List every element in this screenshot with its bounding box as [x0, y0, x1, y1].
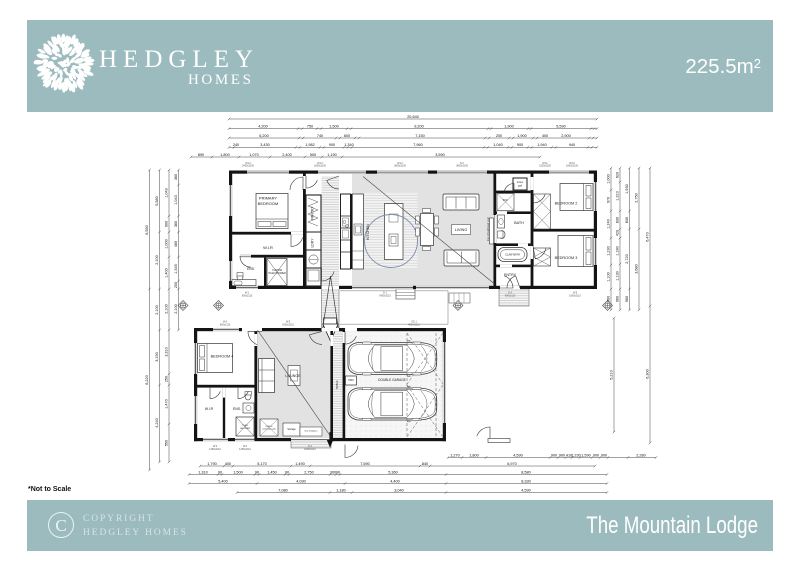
svg-text:960: 960 — [616, 296, 620, 302]
svg-text:5400x2110: 5400x2110 — [379, 294, 391, 297]
svg-text:6,200: 6,200 — [259, 134, 269, 138]
svg-text:600x2110: 600x2110 — [242, 294, 253, 297]
svg-text:1,940: 1,940 — [537, 143, 547, 147]
svg-text:ENS.: ENS. — [233, 407, 241, 411]
svg-text:1,345: 1,345 — [174, 264, 178, 274]
svg-text:400: 400 — [542, 134, 548, 138]
svg-text:1,130: 1,130 — [616, 271, 620, 281]
svg-text:1200x2100: 1200x2100 — [539, 165, 552, 168]
svg-text:2,720: 2,720 — [625, 254, 629, 264]
svg-text:1,800: 1,800 — [469, 453, 479, 457]
svg-text:LIVING: LIVING — [455, 228, 467, 232]
svg-text:1800x2110: 1800x2110 — [282, 323, 294, 326]
svg-text:3,310: 3,310 — [165, 347, 169, 357]
svg-text:1,270: 1,270 — [450, 453, 460, 457]
svg-text:CLAW BATH: CLAW BATH — [505, 253, 520, 257]
svg-text:2,900: 2,900 — [561, 134, 571, 138]
svg-text:1450x2110: 1450x2110 — [239, 448, 251, 451]
svg-text:4,030: 4,030 — [296, 479, 306, 483]
svg-text:200: 200 — [174, 282, 178, 288]
svg-text:2,750: 2,750 — [635, 193, 639, 203]
svg-text:BATH: BATH — [514, 221, 524, 225]
svg-text:1,180: 1,180 — [616, 246, 620, 256]
svg-text:1,040: 1,040 — [493, 143, 503, 147]
svg-text:5,400: 5,400 — [218, 479, 228, 483]
svg-text:600: 600 — [344, 134, 350, 138]
svg-text:1,100: 1,100 — [607, 272, 611, 282]
svg-text:1,310: 1,310 — [198, 470, 208, 474]
svg-text:4800x2110: 4800x2110 — [408, 323, 420, 326]
svg-text:600x2110: 600x2110 — [220, 323, 231, 326]
svg-text:1,900: 1,900 — [504, 125, 514, 129]
svg-text:HWC: HWC — [348, 379, 354, 382]
svg-text:4,400: 4,400 — [390, 479, 400, 483]
svg-text:1,230: 1,230 — [571, 453, 581, 457]
svg-text:TIMBER: TIMBER — [336, 380, 339, 389]
svg-text:W.I.R: W.I.R — [205, 407, 214, 411]
svg-text:1450x2110: 1450x2110 — [209, 448, 221, 451]
svg-text:1,310: 1,310 — [616, 191, 620, 201]
svg-text:BEDROOM: BEDROOM — [258, 201, 279, 206]
svg-text:1,180: 1,180 — [336, 488, 346, 492]
svg-text:DOUBLE GARAGE: DOUBLE GARAGE — [378, 378, 406, 382]
svg-text:1,800: 1,800 — [220, 153, 230, 157]
svg-text:SHOWER: SHOWER — [240, 428, 250, 430]
svg-text:960: 960 — [607, 296, 611, 302]
svg-text:360: 360 — [174, 221, 178, 227]
svg-text:1800x2110: 1800x2110 — [569, 294, 581, 297]
svg-text:Linen: Linen — [517, 180, 524, 184]
svg-text:830: 830 — [625, 217, 629, 223]
svg-text:1,982: 1,982 — [305, 143, 315, 147]
svg-text:6,970: 6,970 — [507, 462, 517, 466]
svg-text:465: 465 — [174, 241, 178, 247]
svg-text:2,100: 2,100 — [174, 304, 178, 314]
svg-text:3600x2100: 3600x2100 — [394, 165, 407, 168]
svg-text:2,750: 2,750 — [304, 470, 314, 474]
svg-text:90: 90 — [255, 470, 259, 474]
svg-text:1,790: 1,790 — [207, 462, 217, 466]
svg-text:1,230: 1,230 — [607, 246, 611, 256]
svg-text:2,100: 2,100 — [155, 305, 159, 315]
svg-text:840: 840 — [422, 462, 428, 466]
svg-text:5,170: 5,170 — [257, 462, 267, 466]
svg-text:420: 420 — [616, 230, 620, 236]
svg-text:1800x2110: 1800x2110 — [304, 448, 316, 451]
svg-text:360: 360 — [174, 174, 178, 180]
svg-text:8,580: 8,580 — [521, 470, 531, 474]
svg-text:1,450: 1,450 — [267, 470, 277, 474]
svg-text:1,240: 1,240 — [607, 219, 611, 229]
svg-text:TILED SHOWER: TILED SHOWER — [268, 273, 286, 275]
svg-text:740: 740 — [317, 134, 323, 138]
svg-text:ENS.: ENS. — [247, 267, 255, 271]
svg-text:7,080: 7,080 — [278, 488, 288, 492]
svg-text:3,590: 3,590 — [435, 153, 445, 157]
svg-text:900: 900 — [329, 143, 335, 147]
svg-text:1,590: 1,590 — [581, 453, 591, 457]
svg-text:550: 550 — [165, 440, 169, 446]
svg-text:900: 900 — [165, 221, 169, 227]
svg-text:5,210: 5,210 — [610, 370, 614, 380]
svg-text:500: 500 — [310, 153, 316, 157]
svg-text:3,150: 3,150 — [155, 352, 159, 362]
svg-text:5,580: 5,580 — [155, 196, 159, 206]
svg-text:1,900: 1,900 — [517, 134, 527, 138]
svg-text:90: 90 — [336, 470, 340, 474]
svg-text:KITCHEN: KITCHEN — [366, 224, 370, 240]
svg-text:9,200: 9,200 — [414, 125, 424, 129]
svg-text:1,190: 1,190 — [327, 153, 337, 157]
svg-text:BEDROOM 4: BEDROOM 4 — [211, 355, 234, 359]
svg-text:TILED: TILED — [242, 425, 249, 427]
svg-text:Storage: Storage — [287, 428, 296, 431]
svg-text:1,043: 1,043 — [174, 195, 178, 205]
svg-text:W.M: W.M — [503, 199, 508, 202]
svg-text:400: 400 — [225, 462, 231, 466]
svg-text:200: 200 — [496, 134, 502, 138]
svg-text:830: 830 — [616, 217, 620, 223]
svg-text:Gas fireplace: Gas fireplace — [305, 430, 319, 433]
svg-text:7,960: 7,960 — [413, 143, 423, 147]
svg-text:960: 960 — [625, 296, 629, 302]
svg-text:5,590: 5,590 — [556, 125, 566, 129]
svg-text:8,330: 8,330 — [521, 479, 531, 483]
svg-text:2400x2100: 2400x2100 — [242, 165, 255, 168]
svg-text:cpd: cpd — [518, 183, 523, 187]
svg-text:7,150: 7,150 — [415, 134, 425, 138]
svg-text:BEDROOM 2: BEDROOM 2 — [555, 202, 578, 206]
svg-text:970: 970 — [607, 197, 611, 203]
svg-text:2,100: 2,100 — [165, 304, 169, 314]
svg-text:1800x2100: 1800x2100 — [566, 165, 579, 168]
svg-text:PANTRY: PANTRY — [311, 206, 315, 220]
svg-text:2,280: 2,280 — [636, 453, 646, 457]
svg-text:7,590: 7,590 — [360, 462, 370, 466]
svg-text:3,040: 3,040 — [394, 488, 404, 492]
svg-text:1,500: 1,500 — [329, 125, 339, 129]
svg-text:PRIMARY: PRIMARY — [259, 196, 277, 201]
svg-text:1800x2100: 1800x2100 — [314, 165, 327, 168]
svg-text:2,100: 2,100 — [155, 255, 159, 265]
svg-text:1,930: 1,930 — [625, 184, 629, 194]
svg-text:900: 900 — [517, 143, 523, 147]
svg-text:20,640: 20,640 — [407, 115, 419, 119]
svg-text:900x2110: 900x2110 — [505, 294, 516, 297]
svg-text:1,340: 1,340 — [344, 143, 354, 147]
svg-text:1,470: 1,470 — [165, 399, 169, 409]
svg-text:W.I.R: W.I.R — [263, 245, 273, 250]
svg-text:6,550: 6,550 — [145, 225, 149, 235]
svg-text:3,430: 3,430 — [260, 143, 270, 147]
svg-text:1,070: 1,070 — [249, 153, 259, 157]
svg-text:CUSTOM: CUSTOM — [272, 270, 282, 272]
svg-text:240: 240 — [233, 143, 239, 147]
svg-text:1,400: 1,400 — [165, 268, 169, 278]
svg-text:1,500: 1,500 — [233, 470, 243, 474]
svg-text:3,680: 3,680 — [635, 264, 639, 274]
svg-text:900: 900 — [551, 453, 557, 457]
svg-text:3600x2100: 3600x2100 — [456, 165, 469, 168]
svg-text:6,300: 6,300 — [646, 369, 650, 379]
svg-text:LDRY: LDRY — [311, 238, 315, 248]
svg-text:overhead cpds: overhead cpds — [262, 428, 276, 431]
svg-text:1,000: 1,000 — [607, 174, 611, 184]
svg-text:5,360: 5,360 — [388, 470, 398, 474]
svg-text:750: 750 — [307, 125, 313, 129]
svg-text:890: 890 — [198, 153, 204, 157]
svg-text:250: 250 — [165, 376, 169, 382]
svg-text:620: 620 — [616, 172, 620, 178]
svg-text:4,240: 4,240 — [155, 418, 159, 428]
svg-text:4,200: 4,200 — [258, 125, 268, 129]
svg-text:4,590: 4,590 — [521, 488, 531, 492]
svg-text:90: 90 — [285, 470, 289, 474]
svg-text:6,220: 6,220 — [145, 375, 149, 385]
svg-text:4,590: 4,590 — [513, 453, 523, 457]
svg-text:900: 900 — [593, 453, 599, 457]
svg-text:900: 900 — [601, 453, 607, 457]
svg-text:1,000: 1,000 — [165, 239, 169, 249]
svg-text:6,470: 6,470 — [646, 232, 650, 242]
svg-text:1,043: 1,043 — [165, 188, 169, 198]
svg-text:940: 940 — [569, 143, 575, 147]
svg-text:BEDROOM 3: BEDROOM 3 — [555, 256, 578, 260]
svg-text:1,490: 1,490 — [295, 462, 305, 466]
svg-text:2,400: 2,400 — [282, 153, 292, 157]
svg-text:900: 900 — [559, 453, 565, 457]
svg-text:90: 90 — [218, 470, 222, 474]
